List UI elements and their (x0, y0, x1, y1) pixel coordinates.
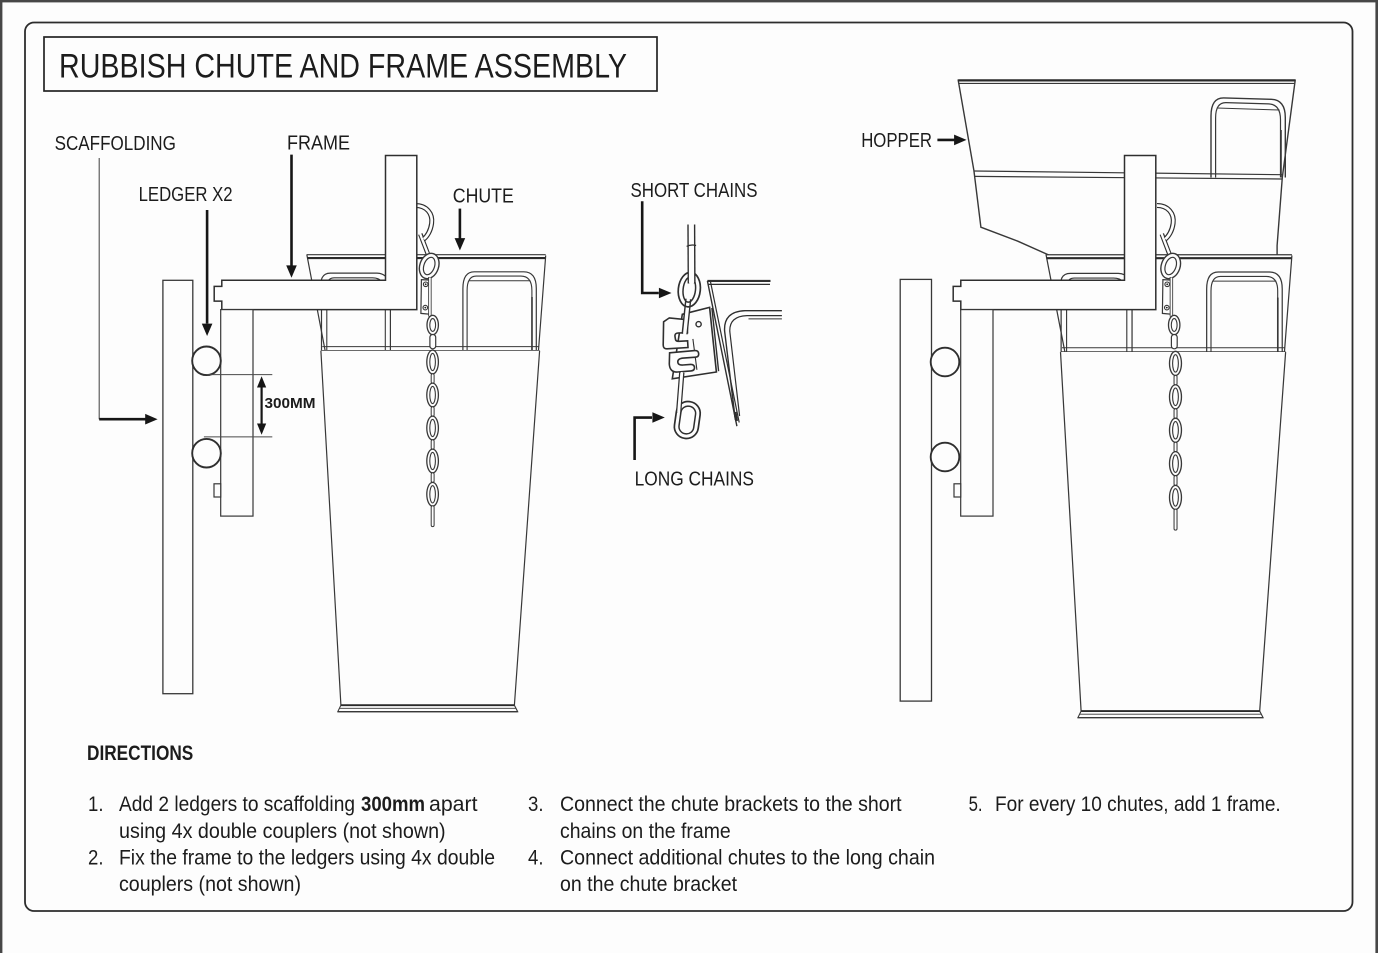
svg-text:LONG CHAINS: LONG CHAINS (635, 468, 754, 491)
svg-text:Connect additional chutes to t: Connect additional chutes to the long ch… (560, 846, 935, 869)
svg-text:Add 2 ledgers to scaffolding: Add 2 ledgers to scaffolding (119, 793, 355, 816)
svg-text:on the chute bracket: on the chute bracket (560, 873, 737, 896)
svg-text:2.: 2. (88, 846, 104, 869)
svg-text:HOPPER: HOPPER (861, 129, 932, 152)
svg-text:1.: 1. (88, 793, 104, 816)
svg-text:FRAME: FRAME (287, 131, 350, 154)
svg-text:Connect the chute brackets to: Connect the chute brackets to the short (560, 793, 902, 816)
svg-text:LEDGER X2: LEDGER X2 (139, 183, 233, 206)
svg-text:using 4x double couplers (not: using 4x double couplers (not shown) (119, 820, 446, 843)
svg-text:SHORT CHAINS: SHORT CHAINS (631, 179, 758, 202)
svg-text:4.: 4. (528, 846, 544, 869)
svg-text:300mm: 300mm (361, 793, 425, 816)
svg-text:300MM: 300MM (265, 395, 316, 412)
svg-text:Fix the frame to the ledgers u: Fix the frame to the ledgers using 4x do… (119, 846, 495, 869)
svg-text:chains on the frame: chains on the frame (560, 820, 731, 843)
svg-text:5.: 5. (969, 793, 983, 816)
svg-text:3.: 3. (528, 793, 544, 816)
svg-text:couplers (not shown): couplers (not shown) (119, 873, 301, 896)
svg-text:CHUTE: CHUTE (453, 184, 514, 207)
svg-text:RUBBISH CHUTE AND FRAME ASSEMB: RUBBISH CHUTE AND FRAME ASSEMBLY (59, 48, 627, 86)
svg-text:For every 10 chutes, add 1 fra: For every 10 chutes, add 1 frame. (995, 793, 1281, 816)
svg-text:apart: apart (429, 793, 478, 816)
svg-text:SCAFFOLDING: SCAFFOLDING (55, 132, 176, 155)
svg-text:DIRECTIONS: DIRECTIONS (87, 741, 193, 765)
